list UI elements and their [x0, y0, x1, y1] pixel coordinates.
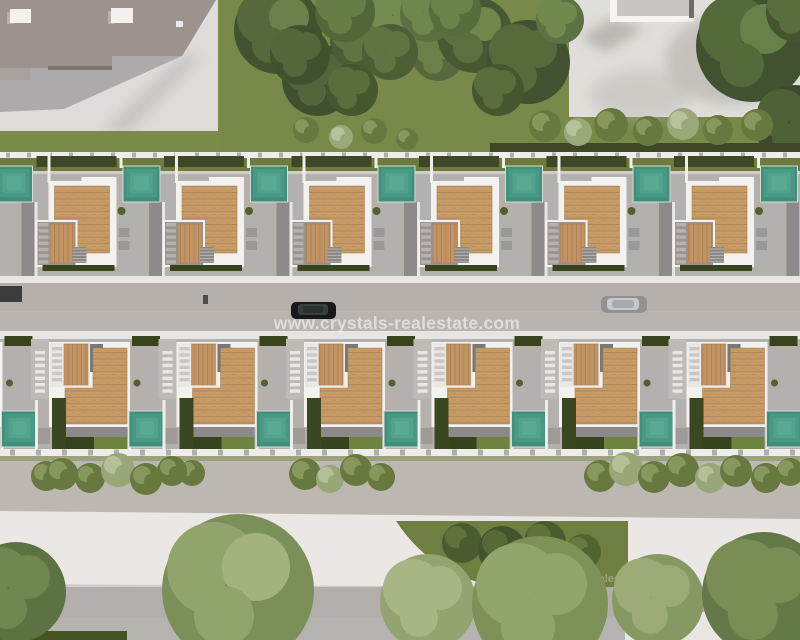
svg-text:www.crystals-realestate.com: www.crystals-realestate.com	[273, 313, 520, 333]
